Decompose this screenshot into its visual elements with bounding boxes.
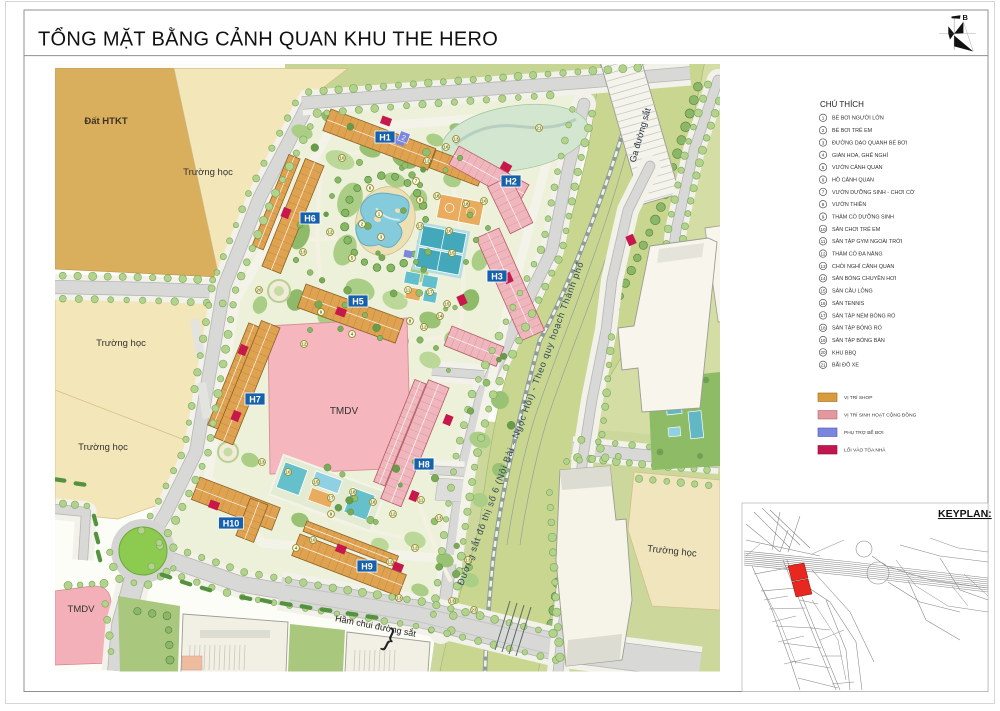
svg-text:BỂ BƠI NGƯỜI LỚN: BỂ BƠI NGƯỜI LỚN — [832, 115, 884, 122]
svg-text:12: 12 — [820, 251, 826, 256]
svg-text:12: 12 — [425, 159, 430, 164]
svg-text:8: 8 — [822, 202, 825, 207]
svg-text:B: B — [963, 13, 969, 22]
svg-text:10: 10 — [340, 156, 345, 161]
svg-text:ĐƯỜNG DẠO QUANH BỂ BƠI: ĐƯỜNG DẠO QUANH BỂ BƠI — [832, 139, 907, 146]
svg-text:12: 12 — [328, 230, 333, 235]
svg-text:11: 11 — [419, 498, 424, 503]
svg-text:2: 2 — [822, 128, 825, 133]
svg-text:HỒ CẢNH QUAN: HỒ CẢNH QUAN — [832, 177, 874, 184]
svg-text:VƯỜN DƯỠNG SINH - CHƠI CỜ: VƯỜN DƯỠNG SINH - CHƠI CỜ — [832, 189, 915, 196]
svg-text:13: 13 — [418, 224, 423, 229]
svg-text:SÂN TENNIS: SÂN TENNIS — [832, 300, 865, 307]
svg-text:20: 20 — [820, 350, 826, 355]
svg-text:10: 10 — [820, 227, 826, 232]
svg-text:SÂN TẬP BÓNG BÀN: SÂN TẬP BÓNG BÀN — [832, 337, 885, 344]
svg-text:9: 9 — [822, 214, 825, 219]
svg-text:GIÀN HOA, GHẾ NGHỈ: GIÀN HOA, GHẾ NGHỈ — [832, 152, 889, 159]
svg-text:21: 21 — [537, 126, 542, 131]
svg-text:12: 12 — [413, 546, 418, 551]
svg-text:12: 12 — [388, 560, 393, 565]
svg-text:20: 20 — [257, 288, 262, 293]
svg-text:13: 13 — [437, 516, 442, 521]
svg-text:12: 12 — [302, 342, 307, 347]
svg-text:TMDV: TMDV — [68, 604, 96, 615]
svg-text:KHU BBQ: KHU BBQ — [832, 350, 856, 356]
svg-text:THẢM CỎ DƯỠNG SINH: THẢM CỎ DƯỠNG SINH — [832, 214, 894, 221]
svg-text:12: 12 — [391, 512, 396, 517]
svg-text:11: 11 — [406, 288, 411, 293]
svg-text:13: 13 — [397, 596, 402, 601]
svg-text:H5: H5 — [352, 296, 364, 306]
svg-text:18: 18 — [351, 490, 356, 495]
svg-text:12: 12 — [422, 325, 427, 330]
svg-text:H8: H8 — [418, 459, 430, 469]
svg-text:23: 23 — [472, 608, 477, 613]
svg-text:4: 4 — [822, 153, 825, 158]
svg-text:13: 13 — [454, 137, 459, 142]
svg-text:TMDV: TMDV — [330, 406, 359, 417]
svg-text:1: 1 — [822, 116, 825, 121]
svg-text:18: 18 — [820, 326, 826, 331]
svg-text:6: 6 — [822, 177, 825, 182]
svg-text:5: 5 — [822, 165, 825, 170]
svg-text:SÂN BÓNG CHUYỀN HƠI: SÂN BÓNG CHUYỀN HƠI — [832, 275, 896, 282]
svg-text:13: 13 — [301, 250, 306, 255]
svg-text:15: 15 — [450, 251, 455, 256]
svg-text:SÂN TẬP GYM NGOÀI TRỜI: SÂN TẬP GYM NGOÀI TRỜI — [832, 238, 902, 245]
svg-text:SÂN CHƠI TRẺ EM: SÂN CHƠI TRẺ EM — [832, 226, 881, 233]
svg-text:18: 18 — [435, 194, 440, 199]
svg-text:13: 13 — [450, 599, 455, 604]
svg-text:10: 10 — [311, 538, 316, 543]
svg-text:17: 17 — [329, 496, 334, 501]
svg-text:19: 19 — [820, 338, 826, 343]
svg-text:VƯỜN CẢNH QUAN: VƯỜN CẢNH QUAN — [832, 164, 883, 171]
svg-text:KEYPLAN:: KEYPLAN: — [938, 508, 992, 520]
svg-text:3: 3 — [822, 140, 825, 145]
svg-text:13: 13 — [820, 264, 826, 269]
svg-text:10: 10 — [482, 199, 487, 204]
svg-text:10: 10 — [286, 470, 291, 475]
svg-text:17: 17 — [428, 290, 433, 295]
svg-text:16: 16 — [371, 500, 376, 505]
svg-text:13: 13 — [260, 460, 265, 465]
svg-text:SÂN CẦU LÔNG: SÂN CẦU LÔNG — [832, 288, 873, 295]
svg-text:H2: H2 — [505, 176, 517, 186]
svg-text:BÃI ĐỖ XE: BÃI ĐỖ XE — [832, 362, 859, 369]
svg-text:PHỤ TRỢ BỂ BƠI: PHỤ TRỢ BỂ BƠI — [844, 429, 884, 436]
svg-text:VƯỜN THIỀN: VƯỜN THIỀN — [832, 201, 866, 208]
svg-text:15: 15 — [314, 480, 319, 485]
svg-text:14: 14 — [820, 276, 826, 281]
svg-text:11: 11 — [821, 239, 826, 244]
svg-text:Trường học: Trường học — [96, 338, 146, 349]
svg-text:VỊ TRÍ SHOP: VỊ TRÍ SHOP — [844, 394, 872, 401]
svg-text:H1: H1 — [379, 132, 391, 142]
svg-text:H7: H7 — [249, 394, 261, 404]
svg-text:16: 16 — [820, 301, 826, 306]
svg-text:THẢM CỎ ĐA NĂNG: THẢM CỎ ĐA NĂNG — [832, 251, 883, 258]
svg-text:TỔNG MẶT BẰNG CẢNH QUAN KHU TH: TỔNG MẶT BẰNG CẢNH QUAN KHU THE HERO — [38, 27, 498, 51]
svg-text:VỊ TRÍ SINH HOẠT CỘNG ĐỒNG: VỊ TRÍ SINH HOẠT CỘNG ĐỒNG — [844, 412, 917, 419]
svg-text:18: 18 — [464, 202, 469, 207]
svg-text:BỂ BƠI TRẺ EM: BỂ BƠI TRẺ EM — [832, 127, 873, 134]
svg-text:LỐI VÀO TÒA NHÀ: LỐI VÀO TÒA NHÀ — [844, 447, 886, 454]
svg-text:H9: H9 — [361, 561, 373, 571]
svg-text:CHÚ THÍCH: CHÚ THÍCH — [820, 100, 864, 109]
svg-text:15: 15 — [820, 289, 826, 294]
svg-text:SÂN TẬP BÓNG RỔ: SÂN TẬP BÓNG RỔ — [832, 325, 882, 332]
svg-text:7: 7 — [822, 190, 825, 195]
svg-text:17: 17 — [820, 313, 826, 318]
svg-text:CHÒI NGHỈ CẢNH QUAN: CHÒI NGHỈ CẢNH QUAN — [832, 263, 894, 270]
svg-text:16: 16 — [447, 229, 452, 234]
svg-text:H10: H10 — [223, 518, 240, 528]
svg-text:H6: H6 — [304, 213, 316, 223]
svg-text:13: 13 — [466, 558, 471, 563]
svg-text:Đất HTKT: Đất HTKT — [84, 116, 127, 127]
svg-text:Trường học: Trường học — [183, 167, 233, 178]
svg-text:21: 21 — [820, 363, 826, 368]
svg-text:Trường học: Trường học — [78, 442, 128, 453]
svg-text:14: 14 — [438, 314, 443, 319]
svg-text:SÂN TẬP NÉM BÓNG RỔ: SÂN TẬP NÉM BÓNG RỔ — [832, 312, 895, 319]
svg-text:H3: H3 — [491, 271, 503, 281]
svg-text:16: 16 — [444, 145, 449, 150]
svg-text:15: 15 — [445, 302, 450, 307]
